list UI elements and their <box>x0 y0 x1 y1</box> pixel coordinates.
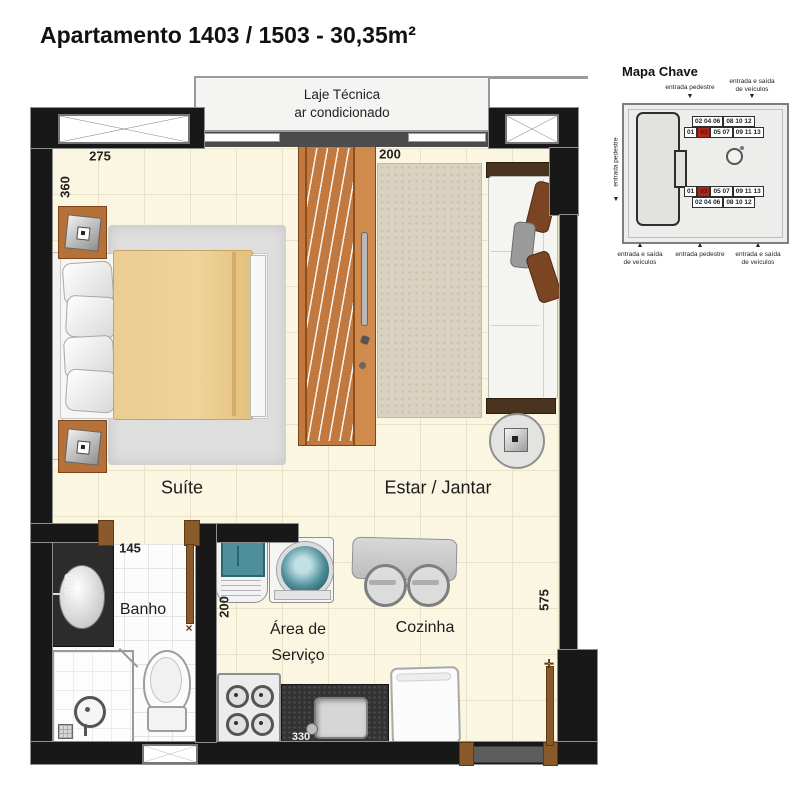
pillow <box>65 368 118 413</box>
unit-cell-highlight: 03 <box>697 127 710 138</box>
dim-suite-height: 360 <box>58 176 73 198</box>
unit-cell-highlight: 03 <box>697 186 710 197</box>
nightstand-bottom <box>58 420 107 473</box>
arrow-down-icon: ▼ <box>749 93 756 100</box>
laje-tecnica-box: Laje Técnica ar condicionado <box>194 76 490 132</box>
kitchen-sink <box>314 697 368 739</box>
room-label-servico-2: Serviço <box>271 647 324 665</box>
site-plan-tower-tab <box>674 150 687 188</box>
door-post <box>459 742 474 766</box>
door-post <box>98 520 114 546</box>
living-rug <box>377 163 482 418</box>
map-label-veiculos-bl-2: de veículos <box>624 259 657 267</box>
sofa-front-shelf <box>486 398 556 414</box>
nightstand-top <box>58 206 107 259</box>
dim-suite-width: 275 <box>89 149 111 164</box>
wall-left <box>31 108 52 764</box>
stove <box>217 673 281 744</box>
unit-cell: 08 10 12 <box>723 197 754 208</box>
room-label-servico-1: Área de <box>270 621 326 639</box>
pillar-top-right <box>550 148 578 215</box>
bathroom-door <box>186 544 194 624</box>
bed-sheet <box>250 255 266 417</box>
stool <box>407 564 450 607</box>
door-handle-icon: × <box>185 621 192 635</box>
laje-line1: Laje Técnica <box>196 86 488 104</box>
unit-strip-lower: 01 03 05 07 09 11 13 02 04 06 08 10 12 <box>684 186 764 208</box>
washing-machine <box>269 537 334 603</box>
map-label-veiculos-bl-1: entrada e saída <box>617 251 662 259</box>
wall-suite-bath <box>31 524 100 542</box>
unit-cell: 09 11 13 <box>733 186 764 197</box>
unit-cell: 01 <box>684 186 697 197</box>
unit-strip-upper: 02 04 06 08 10 12 01 03 05 07 09 11 13 <box>684 116 764 138</box>
pillow <box>65 295 117 340</box>
dim-estar-width: 200 <box>379 147 401 162</box>
side-table <box>489 413 545 469</box>
room-label-cozinha: Cozinha <box>396 619 455 637</box>
door-swing-icon: ✛ <box>544 657 554 671</box>
map-label-pedestre-left: entrada pedestre <box>613 137 620 186</box>
lamp-icon <box>64 214 101 251</box>
drain-icon <box>58 724 73 739</box>
map-label-veiculos-br-1: entrada e saída <box>735 251 780 259</box>
sliding-window-band <box>198 132 490 147</box>
unit-cell: 02 04 06 <box>692 116 723 127</box>
room-label-suite: Suíte <box>161 478 203 499</box>
unit-cell: 02 04 06 <box>692 197 723 208</box>
wardrobe-handle-icon <box>361 232 368 326</box>
unit-cell: 05 07 <box>710 127 732 138</box>
wardrobe <box>298 143 376 446</box>
entry-door <box>546 666 554 746</box>
unit-cell: 09 11 13 <box>733 127 764 138</box>
room-label-banho: Banho <box>120 601 166 619</box>
compass-icon <box>726 148 743 165</box>
room-label-estar: Estar / Jantar <box>384 478 491 499</box>
wall-bath-service <box>196 524 216 742</box>
door-post <box>184 520 200 546</box>
lamp-icon <box>64 428 101 465</box>
toilet-tank <box>147 706 187 732</box>
window <box>58 114 190 144</box>
unit-cell: 05 07 <box>710 186 732 197</box>
shower-head-icon <box>74 696 106 728</box>
map-label-veiculos-br-2: de veículos <box>742 259 775 267</box>
dim-right-height: 575 <box>537 589 552 611</box>
arrow-down-icon: ▼ <box>687 93 694 100</box>
unit-cell: 08 10 12 <box>723 116 754 127</box>
dim-banho-height: 200 <box>62 573 77 595</box>
dim-banho-width: 145 <box>119 541 141 556</box>
laje-line2: ar condicionado <box>196 104 488 122</box>
page-title: Apartamento 1403 / 1503 - 30,35m² <box>40 22 416 49</box>
arrow-down-icon: ▼ <box>613 196 620 203</box>
wall-right <box>560 215 577 655</box>
unit-cell: 01 <box>684 127 697 138</box>
window <box>505 114 559 144</box>
map-label-veiculos-top-1: entrada e saída <box>729 78 774 86</box>
duvet-fold <box>232 252 236 416</box>
fridge <box>390 666 461 746</box>
dim-counter-width: 330 <box>292 731 310 743</box>
arrow-up-icon: ▲ <box>755 242 762 249</box>
shower <box>52 650 134 746</box>
arrow-up-icon: ▲ <box>697 242 704 249</box>
dim-servico-height: 200 <box>217 596 232 618</box>
map-label-pedestre-top: entrada pedestre <box>665 84 714 92</box>
map-label-pedestre-bottom: entrada pedestre <box>675 251 724 259</box>
window <box>142 744 198 764</box>
bathroom-counter <box>50 540 114 647</box>
stool <box>364 564 407 607</box>
mapa-chave-title: Mapa Chave <box>622 64 698 79</box>
laje-roof-line <box>490 76 588 79</box>
arrow-up-icon: ▲ <box>637 242 644 249</box>
laundry-tank <box>216 537 268 603</box>
